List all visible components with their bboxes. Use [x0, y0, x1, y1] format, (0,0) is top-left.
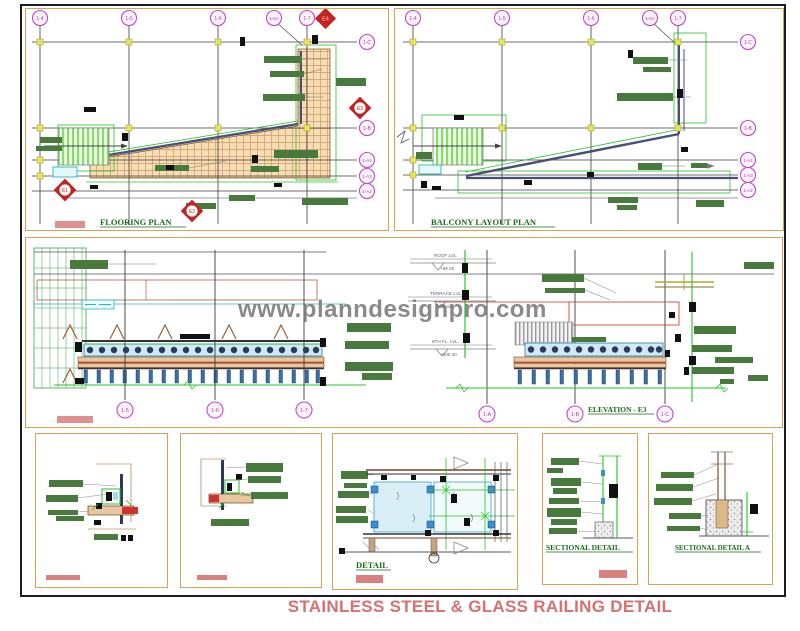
balcony-plan-label: BALCONY LAYOUT PLAN	[431, 217, 555, 227]
roof-edge	[655, 274, 714, 290]
svg-text:1-A4: 1-A4	[743, 158, 753, 163]
detail-label: DETAIL	[356, 560, 391, 583]
svg-text:1-5: 1-5	[121, 408, 129, 414]
detail-panel-1	[35, 433, 168, 588]
datum-lines	[34, 252, 774, 274]
svg-text:1-6A: 1-6A	[645, 16, 654, 21]
svg-text:1-C: 1-C	[744, 40, 752, 46]
svg-text:1-B: 1-B	[363, 126, 371, 132]
sectional-detail-a-label: SECTIONAL DETAIL A	[675, 544, 761, 552]
railing-section	[88, 464, 138, 529]
detail-panel-2	[180, 433, 322, 588]
svg-text:1-6: 1-6	[214, 16, 221, 22]
elevation-drawing: 1-5 1-6 1-7 ROOF LVL. +90.00 TERRACE LVL…	[26, 238, 781, 426]
right-annotation-bars	[692, 262, 774, 384]
grid-bubbles-elevation-left: 1-5 1-6 1-7	[117, 402, 312, 418]
svg-text:E1: E1	[62, 188, 68, 194]
scale-bar	[356, 575, 383, 583]
svg-text:BALCONY LAYOUT PLAN: BALCONY LAYOUT PLAN	[431, 217, 537, 227]
scale-bar	[57, 416, 93, 423]
detail-caption-bar	[197, 575, 227, 580]
flooring-plan-label: FLOORING PLAN	[55, 217, 186, 228]
mid-annotation-bars	[345, 323, 393, 380]
svg-text:1-4: 1-4	[409, 16, 416, 22]
scale-bar	[55, 221, 85, 228]
section-marker-e3: E3	[349, 97, 372, 120]
detail-panel-3: DETAIL	[332, 433, 518, 590]
balcony-floor-hatch	[90, 49, 330, 178]
section-marker-e4: E4	[315, 9, 336, 29]
svg-text:1-5: 1-5	[498, 16, 505, 22]
upper-annotations-right	[542, 274, 616, 300]
svg-text:1-7: 1-7	[303, 16, 310, 22]
svg-text:1-5: 1-5	[125, 16, 132, 22]
svg-text:FLOORING PLAN: FLOORING PLAN	[100, 217, 172, 227]
svg-text:1-7: 1-7	[674, 16, 681, 22]
grid-bubbles-top: 1-4 1-5 1-6 1-6A 1-7	[406, 11, 686, 26]
post-section	[583, 456, 633, 538]
top-annotation	[70, 260, 156, 269]
svg-text:E4: E4	[322, 17, 329, 23]
railing-plan-line	[466, 45, 738, 178]
detail-1-drawing	[36, 434, 166, 586]
svg-text:1-7: 1-7	[300, 408, 308, 414]
lift-box	[419, 165, 441, 174]
lift-box	[53, 167, 77, 177]
black-marks-right	[665, 302, 696, 375]
annotation-bars	[336, 471, 369, 523]
svg-text:1-4: 1-4	[36, 16, 43, 22]
svg-text:1-A3: 1-A3	[743, 173, 753, 178]
svg-text:1-B: 1-B	[744, 126, 752, 132]
svg-text:ELEVATION - E3: ELEVATION - E3	[588, 405, 647, 414]
svg-text:ROOF LVL.: ROOF LVL.	[434, 253, 458, 258]
detail-2-drawing	[181, 434, 320, 586]
sectional-detail-a-drawing: SECTIONAL DETAIL A	[649, 434, 771, 583]
svg-text:1-6A: 1-6A	[269, 16, 278, 21]
sectional-detail-label: SECTIONAL DETAIL	[546, 543, 633, 578]
balcony-plan-panel: 1-4 1-5 1-6 1-6A 1-7 1-C 1-B 1-A4 1-A3 1…	[394, 8, 784, 231]
svg-text:1-C: 1-C	[661, 412, 670, 418]
scale-bar	[599, 570, 627, 578]
balcony-plan-drawing: 1-4 1-5 1-6 1-6A 1-7 1-C 1-B 1-A4 1-A3 1…	[395, 9, 782, 229]
louver-block	[515, 322, 573, 345]
svg-text:SECTIONAL DETAIL: SECTIONAL DETAIL	[546, 543, 620, 552]
svg-text:E3: E3	[357, 106, 363, 112]
svg-text:DETAIL: DETAIL	[356, 560, 388, 570]
sectional-detail-panel: SECTIONAL DETAIL	[542, 433, 638, 585]
sheet-title: STAINLESS STEEL & GLASS RAILING DETAIL	[255, 597, 705, 625]
sectional-detail-drawing: SECTIONAL DETAIL	[543, 434, 636, 583]
level-tag-box	[82, 300, 114, 309]
svg-text:1-B: 1-B	[571, 412, 580, 418]
flooring-plan-drawing: E4 E3 E2 E1 1-4 1-5 1-6 1-6A 1-7 1-C 1-B…	[26, 9, 387, 229]
elevation-panel: 1-5 1-6 1-7 ROOF LVL. +90.00 TERRACE LVL…	[25, 237, 783, 428]
watermark: www.planndesignpro.com	[238, 296, 547, 324]
svg-text:+90.00: +90.00	[440, 266, 455, 271]
svg-text:1-6: 1-6	[211, 408, 219, 414]
rail-annotation	[572, 337, 606, 342]
svg-text:SECTIONAL DETAIL A: SECTIONAL DETAIL A	[675, 544, 750, 552]
svg-text:1-6: 1-6	[587, 16, 594, 22]
annotation-bars	[547, 458, 581, 534]
svg-text:+600.30: +600.30	[440, 352, 457, 357]
post-footing-section	[699, 452, 769, 536]
flooring-plan-panel: E4 E3 E2 E1 1-4 1-5 1-6 1-6A 1-7 1-C 1-B…	[25, 8, 389, 231]
svg-text:E2: E2	[189, 209, 195, 215]
svg-text:1-A3: 1-A3	[362, 174, 372, 179]
drawing-sheet: E4 E3 E2 E1 1-4 1-5 1-6 1-6A 1-7 1-C 1-B…	[0, 0, 800, 631]
svg-text:1-A: 1-A	[483, 412, 492, 418]
svg-text:1-A2: 1-A2	[362, 189, 372, 194]
svg-text:1-A4: 1-A4	[362, 158, 372, 163]
glass-railing-left	[54, 341, 366, 389]
svg-text:6TH FL. LVL.: 6TH FL. LVL.	[432, 339, 459, 344]
grid-bubbles-right: 1-C 1-B 1-A4 1-A3 1-A2	[741, 35, 756, 198]
leader-lines	[577, 461, 603, 532]
detail-drawing: DETAIL	[333, 434, 516, 588]
elevation-label: ELEVATION - E3	[588, 405, 654, 414]
svg-text:1-C: 1-C	[363, 40, 371, 46]
sectional-detail-a-panel: SECTIONAL DETAIL A	[648, 433, 773, 585]
grid-bubbles-top: 1-4 1-5 1-6 1-6A 1-7	[33, 11, 315, 26]
svg-text:1-A2: 1-A2	[743, 188, 753, 193]
detail-caption-bar	[46, 575, 80, 580]
annotation-bars	[654, 472, 701, 531]
